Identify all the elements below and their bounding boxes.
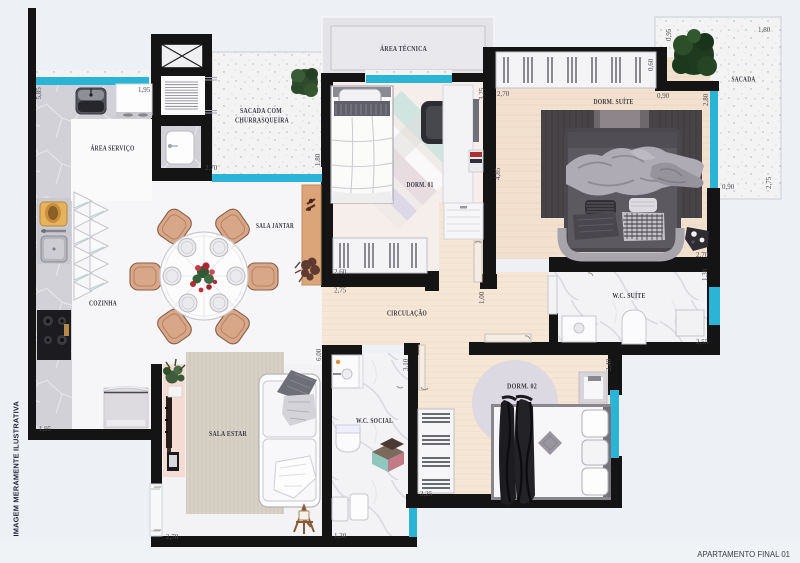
svg-text:2,75: 2,75 — [765, 176, 773, 189]
svg-text:2,70: 2,70 — [166, 533, 179, 541]
svg-text:SACADA COM: SACADA COM — [240, 107, 282, 115]
svg-text:CIRCULAÇÃO: CIRCULAÇÃO — [387, 310, 427, 318]
svg-text:1,80: 1,80 — [314, 153, 322, 166]
svg-text:0,60: 0,60 — [647, 58, 655, 71]
svg-text:4,85: 4,85 — [494, 167, 502, 180]
svg-text:2,70: 2,70 — [205, 164, 218, 172]
svg-text:2,70: 2,70 — [696, 251, 709, 259]
svg-text:DORM. SUÍTE: DORM. SUÍTE — [594, 98, 634, 106]
svg-text:0,90: 0,90 — [657, 92, 670, 100]
svg-text:DORM. 01: DORM. 01 — [407, 181, 434, 189]
svg-text:SALA ESTAR: SALA ESTAR — [209, 430, 248, 438]
svg-text:W.C. SUÍTE: W.C. SUÍTE — [613, 292, 646, 300]
svg-text:2,80: 2,80 — [702, 93, 710, 106]
svg-text:0,90: 0,90 — [722, 183, 735, 191]
svg-text:DORM. 02: DORM. 02 — [507, 383, 537, 391]
svg-text:ÁREA SERVIÇO: ÁREA SERVIÇO — [91, 145, 135, 153]
svg-text:CHURRASQUEIRA: CHURRASQUEIRA — [235, 117, 289, 125]
svg-text:5,85: 5,85 — [35, 87, 43, 100]
svg-text:1,00: 1,00 — [478, 291, 486, 304]
svg-text:3,10: 3,10 — [402, 358, 410, 371]
svg-text:1,30: 1,30 — [334, 532, 347, 540]
svg-text:W.C. SOCIAL: W.C. SOCIAL — [356, 417, 393, 425]
svg-text:0,95: 0,95 — [665, 28, 673, 41]
svg-text:2,70: 2,70 — [497, 90, 510, 98]
svg-text:1,95: 1,95 — [138, 86, 151, 94]
svg-text:IMAGEM MERAMENTE ILUSTRATIVA: IMAGEM MERAMENTE ILUSTRATIVA — [12, 401, 21, 537]
svg-text:ÁREA TÉCNICA: ÁREA TÉCNICA — [380, 45, 427, 53]
svg-text:APARTAMENTO FINAL 01: APARTAMENTO FINAL 01 — [697, 550, 790, 559]
svg-text:2,55: 2,55 — [696, 338, 709, 346]
svg-text:6,00: 6,00 — [315, 348, 323, 361]
svg-text:2,40: 2,40 — [605, 358, 613, 371]
svg-text:3,25: 3,25 — [478, 87, 486, 100]
svg-text:SACADA: SACADA — [732, 76, 756, 84]
svg-text:3,25: 3,25 — [420, 490, 433, 498]
svg-text:1,80: 1,80 — [758, 26, 771, 34]
svg-text:SALA JANTAR: SALA JANTAR — [256, 222, 294, 230]
svg-text:2,60: 2,60 — [334, 268, 347, 276]
svg-text:1,95: 1,95 — [39, 425, 52, 433]
svg-text:COZINHA: COZINHA — [89, 300, 117, 308]
svg-text:1,30: 1,30 — [701, 268, 709, 281]
svg-text:2,75: 2,75 — [334, 287, 347, 295]
